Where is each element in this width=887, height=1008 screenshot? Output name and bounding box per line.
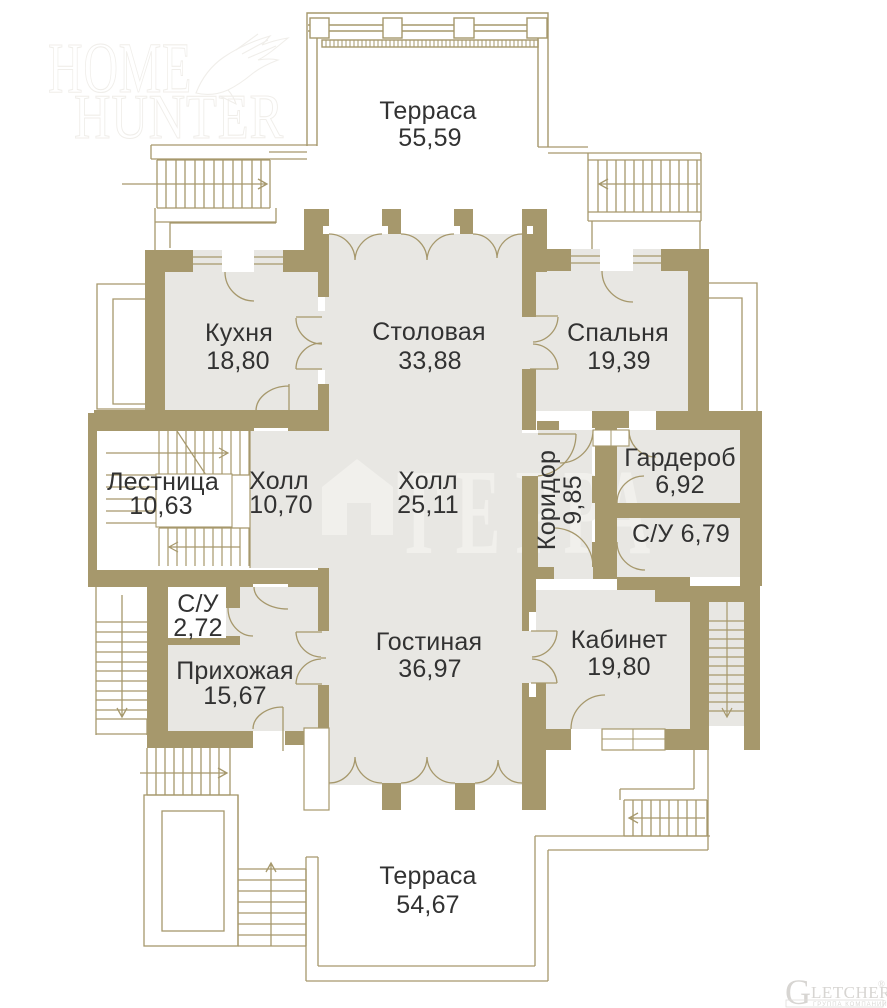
svg-text:ГРУППА КОМПАНИЙ: ГРУППА КОМПАНИЙ [813,1000,887,1008]
svg-text:Терраса: Терраса [379,97,476,125]
svg-text:19,80: 19,80 [587,653,651,681]
svg-text:9,85: 9,85 [559,475,587,524]
svg-text:С/У 6,79: С/У 6,79 [632,520,730,548]
svg-text:15,67: 15,67 [203,682,267,710]
svg-text:Е: Е [456,445,501,580]
svg-text:LETCHER: LETCHER [811,983,887,1002]
svg-text:Прихожая: Прихожая [176,657,293,685]
svg-text:Гостиная: Гостиная [376,628,483,656]
svg-text:10,70: 10,70 [249,491,313,519]
svg-text:®: ® [878,979,885,989]
svg-text:19,39: 19,39 [587,347,651,375]
svg-text:55,59: 55,59 [398,124,462,152]
svg-text:Кухня: Кухня [205,319,273,347]
svg-text:54,67: 54,67 [396,891,460,919]
svg-text:HUNTER: HUNTER [74,82,284,152]
svg-text:G: G [785,972,811,1008]
svg-text:Терраса: Терраса [379,862,476,890]
svg-text:Кабинет: Кабинет [571,626,668,654]
svg-text:18,80: 18,80 [206,347,270,375]
svg-text:Столовая: Столовая [372,318,485,346]
svg-text:Коридор: Коридор [533,450,561,550]
svg-text:Спальня: Спальня [567,319,669,347]
svg-text:2,72: 2,72 [173,614,222,642]
svg-text:36,97: 36,97 [398,655,462,683]
svg-text:10,63: 10,63 [129,492,193,520]
svg-text:Гардероб: Гардероб [624,444,736,472]
svg-text:25,11: 25,11 [397,491,459,519]
svg-text:33,88: 33,88 [398,347,462,375]
svg-text:6,92: 6,92 [655,471,704,499]
